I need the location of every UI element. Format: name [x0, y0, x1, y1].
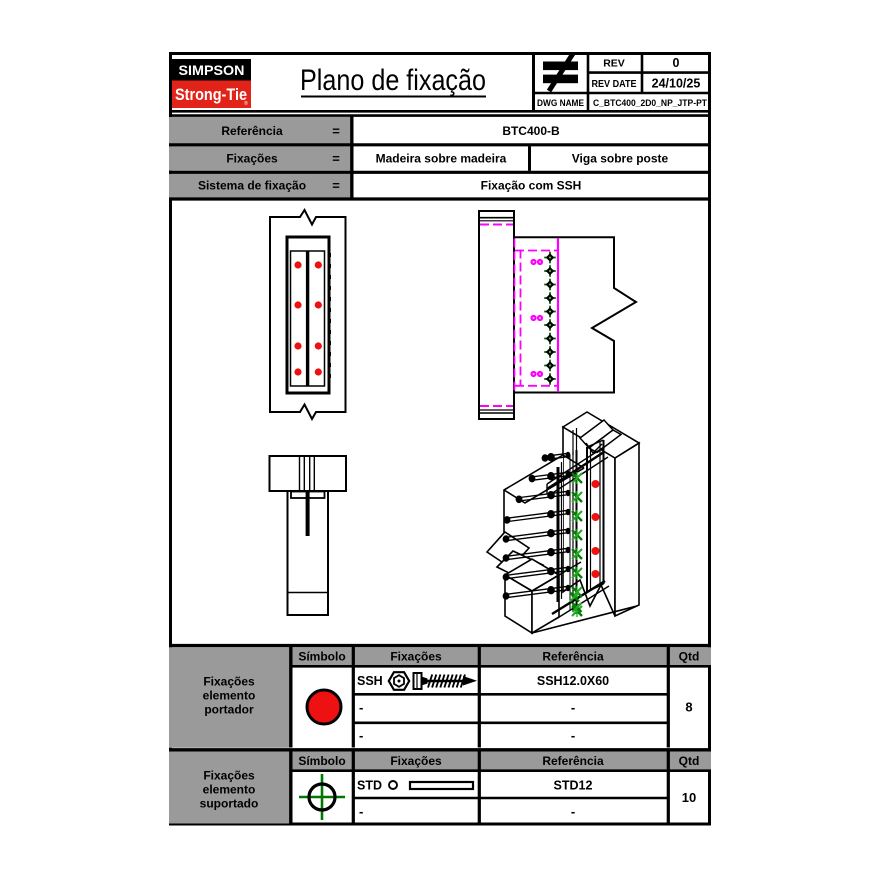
- svg-text:Referência: Referência: [542, 754, 604, 768]
- svg-text:SSH12.0X60: SSH12.0X60: [537, 674, 609, 688]
- svg-text:Fixação com SSH: Fixação com SSH: [481, 179, 582, 193]
- svg-text:Símbolo: Símbolo: [298, 754, 345, 768]
- svg-text:Fixações: Fixações: [226, 152, 278, 166]
- svg-text:elemento: elemento: [203, 689, 256, 703]
- svg-text:Fixações: Fixações: [203, 675, 255, 689]
- svg-text:8: 8: [685, 700, 692, 715]
- svg-text:STD12: STD12: [554, 779, 593, 793]
- svg-text:SIMPSON: SIMPSON: [179, 62, 245, 78]
- svg-text:BTC400-B: BTC400-B: [502, 124, 560, 138]
- svg-text:=: =: [332, 124, 340, 139]
- svg-text:Símbolo: Símbolo: [298, 650, 345, 664]
- svg-text:Fixações: Fixações: [203, 769, 255, 783]
- svg-text:Fixações: Fixações: [390, 650, 442, 664]
- svg-text:SSH: SSH: [357, 674, 383, 688]
- svg-text:elemento: elemento: [203, 783, 256, 797]
- svg-text:Referência: Referência: [221, 124, 283, 138]
- svg-text:-: -: [359, 700, 363, 715]
- svg-text:24/10/25: 24/10/25: [652, 77, 701, 91]
- svg-text:Viga sobre poste: Viga sobre poste: [572, 152, 669, 166]
- svg-text:C_BTC400_2D0_NP_JTP-PT: C_BTC400_2D0_NP_JTP-PT: [593, 98, 708, 108]
- svg-text:-: -: [571, 804, 575, 819]
- svg-text:Madeira sobre madeira: Madeira sobre madeira: [376, 152, 507, 166]
- svg-text:0: 0: [673, 56, 680, 70]
- svg-text:Fixações: Fixações: [390, 754, 442, 768]
- svg-text:suportado: suportado: [200, 797, 259, 811]
- svg-text:Qtd: Qtd: [679, 754, 700, 768]
- svg-text:10: 10: [682, 790, 696, 805]
- svg-text:®: ®: [244, 100, 248, 107]
- svg-text:REV: REV: [603, 58, 625, 70]
- svg-text:portador: portador: [204, 703, 254, 717]
- svg-text:Sistema de fixação: Sistema de fixação: [198, 179, 306, 193]
- svg-text:=: =: [332, 178, 340, 193]
- svg-text:Qtd: Qtd: [679, 650, 700, 664]
- svg-text:Plano de fixação: Plano de fixação: [300, 64, 486, 97]
- svg-text:Referência: Referência: [542, 650, 604, 664]
- svg-text:=: =: [332, 151, 340, 166]
- svg-text:-: -: [571, 728, 575, 743]
- svg-text:-: -: [571, 700, 575, 715]
- svg-text:REV DATE: REV DATE: [592, 79, 637, 90]
- svg-text:-: -: [359, 728, 363, 743]
- svg-text:DWG NAME: DWG NAME: [537, 98, 584, 108]
- svg-text:Strong-Tie: Strong-Tie: [175, 86, 247, 104]
- svg-text:-: -: [359, 804, 363, 819]
- svg-text:STD: STD: [357, 779, 382, 793]
